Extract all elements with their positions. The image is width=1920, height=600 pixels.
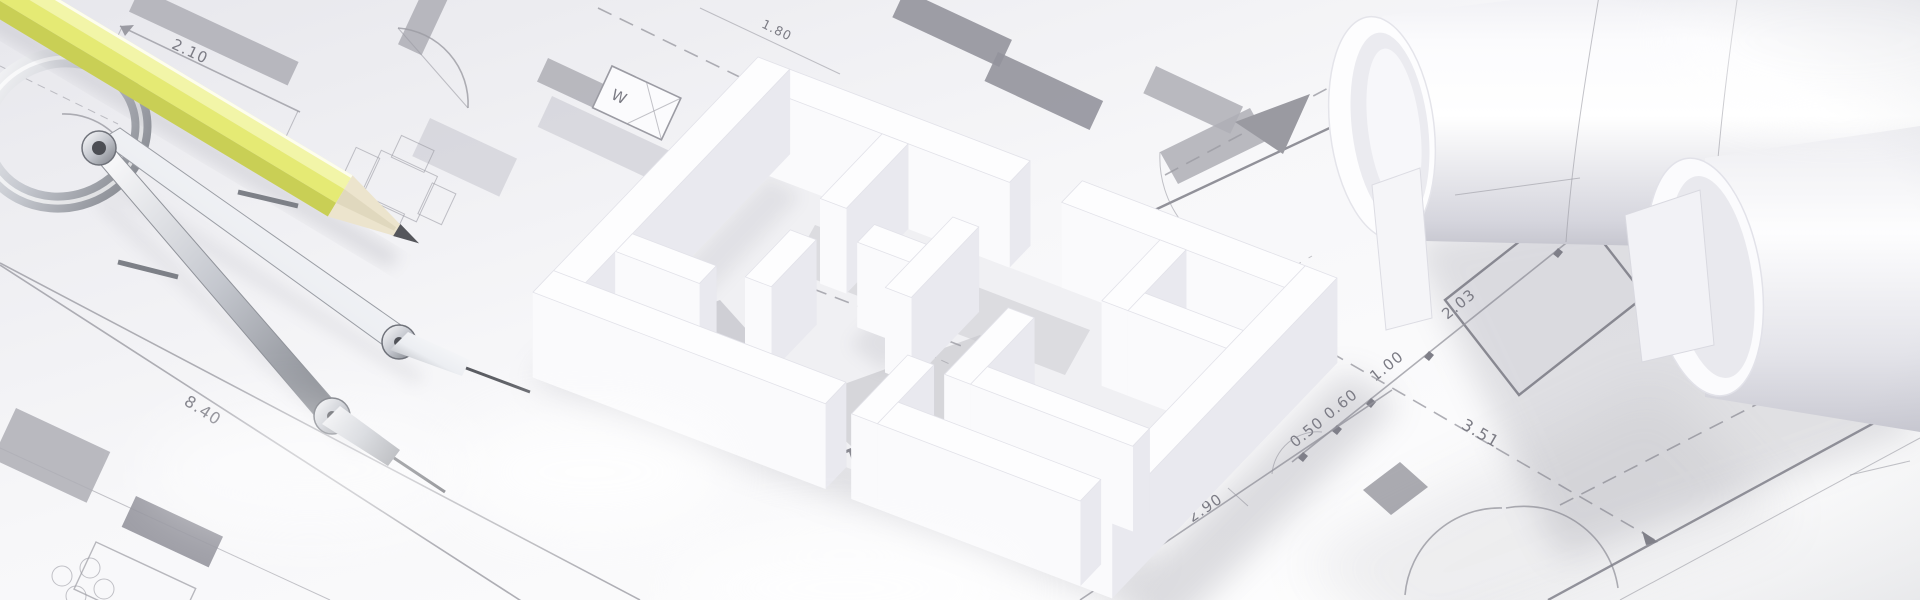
architectural-blueprint-photo: 2.10 1.80 W 8.40: [0, 0, 1920, 600]
scene-canvas: 2.10 1.80 W 8.40: [0, 0, 1920, 600]
compass-hinge-screw: [92, 141, 106, 155]
